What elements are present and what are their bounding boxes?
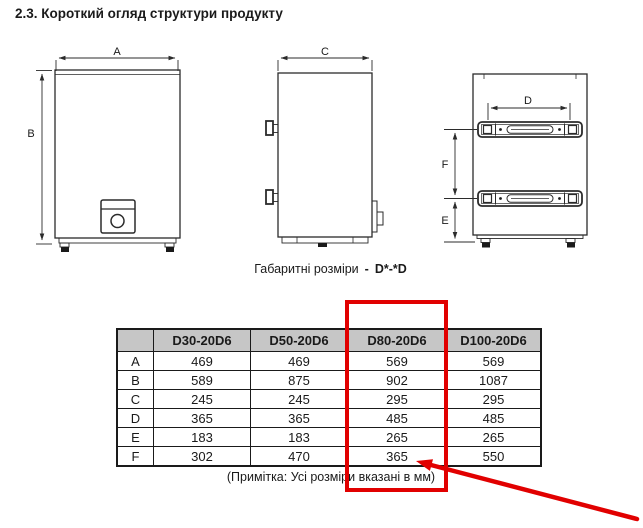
- table-cell: 302: [154, 447, 251, 467]
- dim-label-a: A: [113, 46, 121, 58]
- dim-label-c: C: [321, 46, 329, 58]
- table-cell: 469: [154, 352, 251, 371]
- header-cell-d100: D100-20D6: [447, 329, 542, 352]
- front-view: A B: [27, 46, 180, 252]
- manual-page: 2.3. Короткий огляд структури продукту A…: [0, 0, 643, 528]
- table-cell: 295: [447, 390, 542, 409]
- control-knob: [111, 215, 124, 228]
- table-cell: 183: [154, 428, 251, 447]
- mounting-bracket-upper: [478, 122, 582, 137]
- caption-separator: -: [365, 262, 369, 276]
- dim-label-f: F: [442, 159, 449, 171]
- mounting-bracket-lower: [478, 191, 582, 206]
- dim-label-d: D: [524, 95, 532, 107]
- dimensions-table: D30-20D6 D50-20D6 D80-20D6 D100-20D6 A46…: [116, 328, 542, 467]
- table-cell: 550: [447, 447, 542, 467]
- row-label: E: [117, 428, 154, 447]
- product-structure-diagram: A B C: [0, 0, 643, 270]
- table-cell: 569: [447, 352, 542, 371]
- figure-caption: Габаритні розміри-D*-*D: [0, 262, 643, 276]
- row-label: B: [117, 371, 154, 390]
- highlight-rectangle: [345, 300, 448, 492]
- table-row: F302470365550: [117, 447, 541, 467]
- row-label: C: [117, 390, 154, 409]
- row-label: D: [117, 409, 154, 428]
- table-row: E183183265265: [117, 428, 541, 447]
- table-cell: 589: [154, 371, 251, 390]
- dim-label-b: B: [27, 128, 34, 140]
- side-view: C: [266, 46, 383, 247]
- header-cell-d30: D30-20D6: [154, 329, 251, 352]
- table-cell: 365: [251, 409, 348, 428]
- table-cell: 470: [251, 447, 348, 467]
- caption-text: Габаритні розміри: [254, 262, 358, 276]
- table-cell: 875: [251, 371, 348, 390]
- table-cell: 245: [251, 390, 348, 409]
- table-cell: 183: [251, 428, 348, 447]
- model-code: D*-*D: [375, 262, 407, 276]
- table-cell: 485: [447, 409, 542, 428]
- back-view: D F E: [441, 74, 587, 248]
- table-cell: 245: [154, 390, 251, 409]
- table-header-row: D30-20D6 D50-20D6 D80-20D6 D100-20D6: [117, 329, 541, 352]
- table-row: C245245295295: [117, 390, 541, 409]
- pipe-connection-upper: [266, 121, 278, 135]
- pipe-connection-lower: [266, 190, 278, 204]
- table-row: D365365485485: [117, 409, 541, 428]
- table-cell: 265: [447, 428, 542, 447]
- control-panel: [101, 200, 135, 233]
- dim-label-e: E: [441, 215, 448, 227]
- row-label: A: [117, 352, 154, 371]
- row-label: F: [117, 447, 154, 467]
- table-cell: 1087: [447, 371, 542, 390]
- header-cell-blank: [117, 329, 154, 352]
- table-cell: 365: [154, 409, 251, 428]
- table-cell: 469: [251, 352, 348, 371]
- table-row: A469469569569: [117, 352, 541, 371]
- table-row: B5898759021087: [117, 371, 541, 390]
- units-note: (Примітка: Усі розміри вказані в мм): [0, 470, 643, 484]
- header-cell-d50: D50-20D6: [251, 329, 348, 352]
